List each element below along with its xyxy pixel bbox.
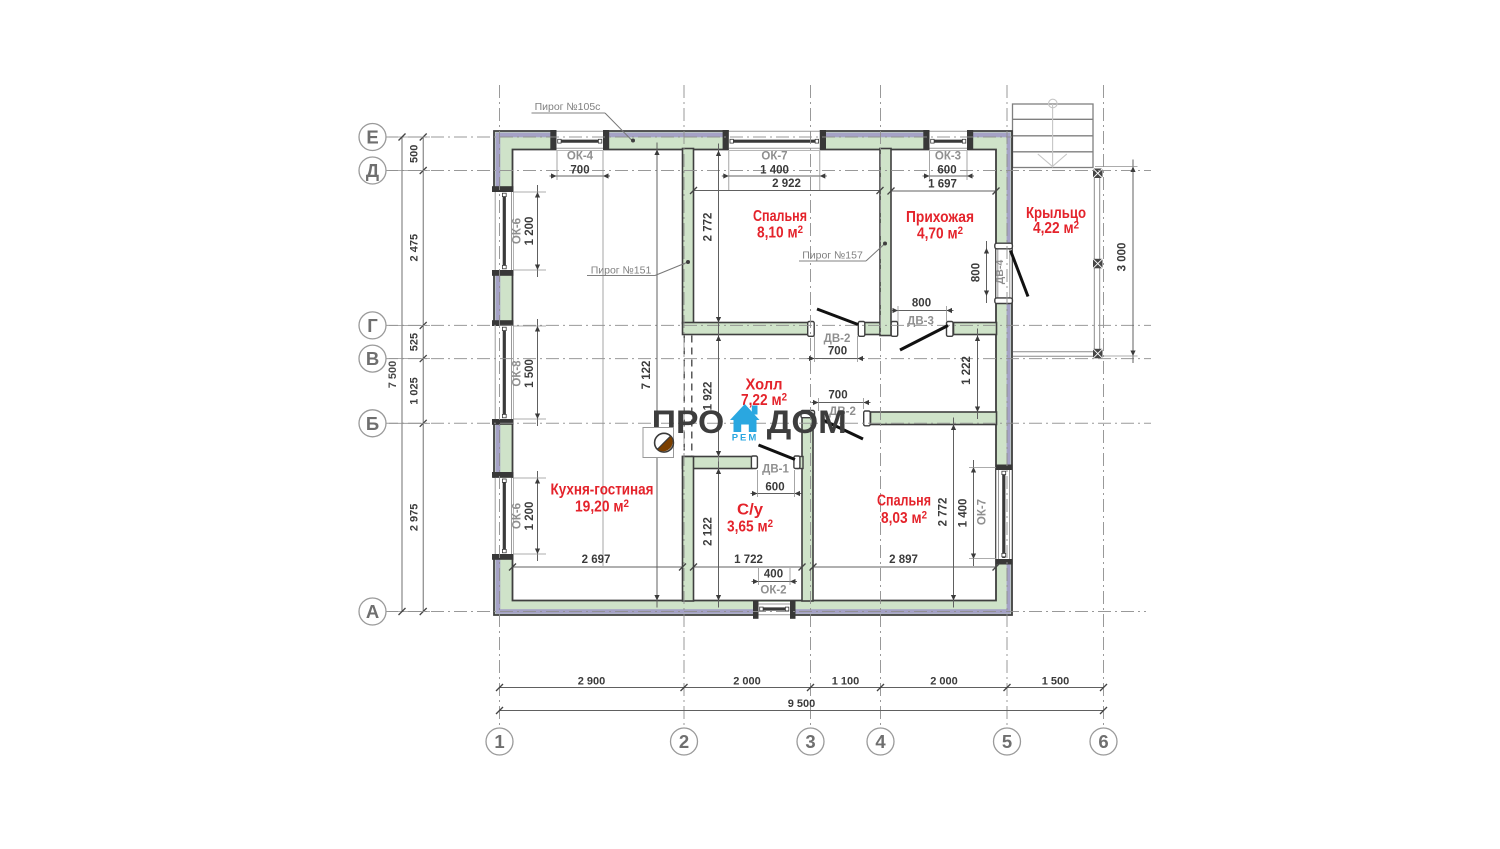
svg-text:800: 800 xyxy=(912,298,931,310)
svg-text:ОК-2: ОК-2 xyxy=(760,585,786,597)
svg-text:Е: Е xyxy=(366,127,378,148)
svg-text:2 475: 2 475 xyxy=(409,234,421,262)
svg-text:ОК-6: ОК-6 xyxy=(512,503,524,529)
svg-text:2: 2 xyxy=(679,731,689,752)
svg-text:Г: Г xyxy=(367,315,378,336)
svg-text:3 000: 3 000 xyxy=(1117,243,1129,272)
svg-text:1 222: 1 222 xyxy=(961,356,973,385)
svg-text:1 400: 1 400 xyxy=(958,499,970,528)
svg-text:А: А xyxy=(366,601,379,622)
svg-text:ДВ-3: ДВ-3 xyxy=(907,316,934,328)
svg-text:2 697: 2 697 xyxy=(582,554,611,566)
svg-text:2 975: 2 975 xyxy=(409,504,421,532)
svg-text:525: 525 xyxy=(409,333,421,351)
svg-text:8,03 м2: 8,03 м2 xyxy=(881,510,927,528)
svg-text:Б: Б xyxy=(366,413,379,434)
svg-text:19,20 м2: 19,20 м2 xyxy=(575,498,629,516)
svg-text:6: 6 xyxy=(1098,731,1108,752)
svg-text:1 025: 1 025 xyxy=(409,377,421,405)
svg-text:ДВ-2: ДВ-2 xyxy=(824,333,851,345)
svg-text:1 500: 1 500 xyxy=(524,359,536,388)
svg-text:2 000: 2 000 xyxy=(930,676,958,688)
svg-text:Спальня: Спальня xyxy=(753,208,807,225)
svg-text:РЕМ: РЕМ xyxy=(732,433,759,444)
svg-text:Пирог №151: Пирог №151 xyxy=(591,265,652,277)
svg-text:700: 700 xyxy=(828,346,847,358)
svg-text:С/у: С/у xyxy=(737,502,763,519)
svg-text:ОК-3: ОК-3 xyxy=(935,151,961,163)
svg-text:400: 400 xyxy=(764,569,783,581)
svg-text:7 500: 7 500 xyxy=(387,361,399,389)
svg-text:Прихожая: Прихожая xyxy=(906,209,974,226)
svg-text:2 900: 2 900 xyxy=(578,676,606,688)
svg-text:500: 500 xyxy=(409,145,421,163)
svg-text:8,10 м2: 8,10 м2 xyxy=(757,224,803,242)
svg-text:600: 600 xyxy=(765,482,784,494)
svg-text:4: 4 xyxy=(875,731,886,752)
svg-text:Пирог №105с: Пирог №105с xyxy=(535,101,601,113)
svg-text:5: 5 xyxy=(1002,731,1012,752)
svg-text:ОК-7: ОК-7 xyxy=(977,499,989,525)
svg-text:7 122: 7 122 xyxy=(641,361,653,390)
svg-text:3,65 м2: 3,65 м2 xyxy=(727,518,773,536)
svg-text:3: 3 xyxy=(805,731,815,752)
svg-text:1 697: 1 697 xyxy=(928,179,957,191)
svg-text:ОК-8: ОК-8 xyxy=(512,360,524,387)
svg-text:9 500: 9 500 xyxy=(788,698,816,710)
svg-text:1 722: 1 722 xyxy=(734,554,763,566)
svg-text:700: 700 xyxy=(828,390,847,402)
svg-text:2 122: 2 122 xyxy=(703,517,715,546)
svg-text:2 897: 2 897 xyxy=(889,554,918,566)
svg-text:2 922: 2 922 xyxy=(772,178,801,190)
svg-text:Кухня-гостиная: Кухня-гостиная xyxy=(551,482,654,499)
svg-text:ДВ-1: ДВ-1 xyxy=(762,464,789,476)
svg-text:ДВ-4: ДВ-4 xyxy=(994,260,1006,285)
svg-text:800: 800 xyxy=(971,263,983,282)
svg-text:Холл: Холл xyxy=(746,377,783,394)
svg-text:ОК-4: ОК-4 xyxy=(567,151,594,163)
svg-text:1 500: 1 500 xyxy=(1042,676,1070,688)
svg-text:Д: Д xyxy=(366,160,379,181)
svg-text:1: 1 xyxy=(494,731,504,752)
svg-text:2 772: 2 772 xyxy=(938,498,950,527)
svg-text:2 000: 2 000 xyxy=(733,676,761,688)
svg-text:4,70 м2: 4,70 м2 xyxy=(917,225,963,243)
svg-text:ОК-7: ОК-7 xyxy=(761,151,787,163)
svg-text:2 772: 2 772 xyxy=(703,213,715,242)
svg-text:1 400: 1 400 xyxy=(760,165,789,177)
svg-text:1 200: 1 200 xyxy=(524,217,536,246)
svg-text:1 200: 1 200 xyxy=(524,502,536,531)
svg-text:600: 600 xyxy=(937,165,956,177)
svg-text:ОК-6: ОК-6 xyxy=(512,218,524,244)
svg-text:700: 700 xyxy=(570,165,589,177)
svg-text:Пирог №157: Пирог №157 xyxy=(802,250,863,262)
svg-text:4,22 м2: 4,22 м2 xyxy=(1033,220,1079,238)
svg-text:1 100: 1 100 xyxy=(832,676,860,688)
svg-text:ДОМ: ДОМ xyxy=(767,404,847,440)
svg-text:В: В xyxy=(366,348,379,369)
svg-text:Спальня: Спальня xyxy=(877,493,931,510)
